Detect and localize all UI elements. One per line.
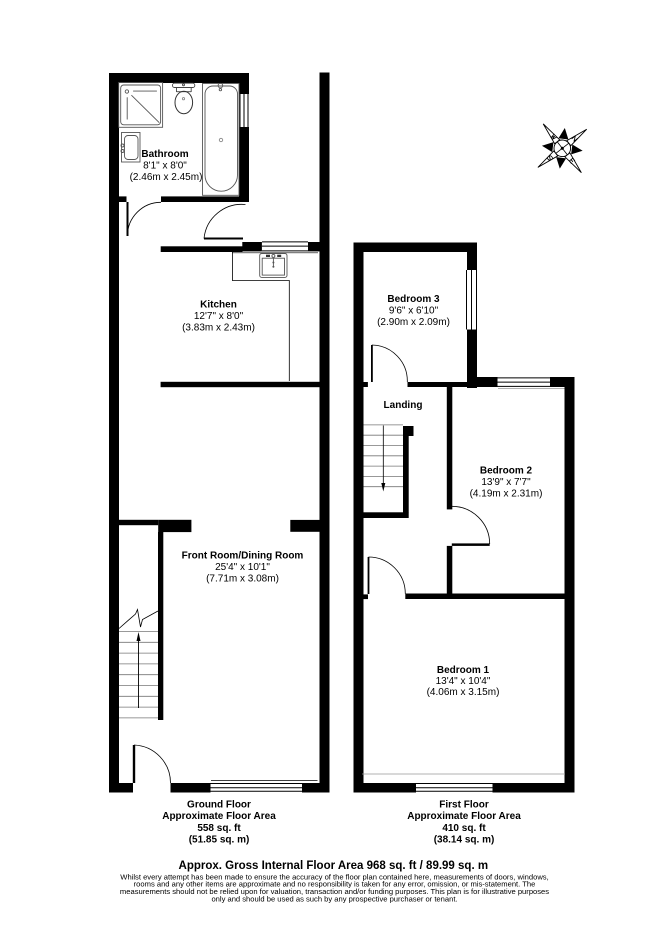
svg-text:12'7" x 8'0": 12'7" x 8'0" xyxy=(194,311,244,322)
svg-text:9'6" x 6'10": 9'6" x 6'10" xyxy=(389,306,439,317)
svg-text:Bathroom: Bathroom xyxy=(141,149,188,160)
svg-text:First Floor: First Floor xyxy=(439,800,489,811)
svg-text:Bedroom 2: Bedroom 2 xyxy=(480,466,533,477)
svg-text:Landing: Landing xyxy=(384,400,423,411)
svg-text:only and should be used as suc: only and should be used as such by any p… xyxy=(211,895,457,904)
svg-text:25'4" x 10'1": 25'4" x 10'1" xyxy=(215,562,270,573)
svg-text:(51.85 sq. m): (51.85 sq. m) xyxy=(189,834,250,845)
svg-text:410 sq. ft: 410 sq. ft xyxy=(442,823,486,834)
svg-text:Front Room/Dining Room: Front Room/Dining Room xyxy=(182,551,304,562)
svg-text:13'9" x 7'7": 13'9" x 7'7" xyxy=(481,477,531,488)
svg-text:(4.06m x 3.15m): (4.06m x 3.15m) xyxy=(427,687,500,698)
svg-text:(4.19m x 2.31m): (4.19m x 2.31m) xyxy=(470,489,543,500)
svg-text:Approx. Gross Internal Floor A: Approx. Gross Internal Floor Area 968 sq… xyxy=(179,860,489,872)
svg-text:(38.14 sq. m): (38.14 sq. m) xyxy=(434,834,495,845)
svg-text:13'4" x 10'4": 13'4" x 10'4" xyxy=(436,676,491,687)
svg-text:Approximate Floor Area: Approximate Floor Area xyxy=(407,811,521,822)
svg-text:8'1" x 8'0": 8'1" x 8'0" xyxy=(143,161,187,172)
svg-text:558 sq. ft: 558 sq. ft xyxy=(197,823,241,834)
svg-text:Bedroom 1: Bedroom 1 xyxy=(437,665,490,676)
svg-text:Approximate Floor Area: Approximate Floor Area xyxy=(162,811,276,822)
svg-text:(2.90m x 2.09m): (2.90m x 2.09m) xyxy=(377,317,450,328)
svg-text:Kitchen: Kitchen xyxy=(200,300,237,311)
svg-text:Bedroom 3: Bedroom 3 xyxy=(387,294,440,305)
svg-text:(7.71m x 3.08m): (7.71m x 3.08m) xyxy=(206,574,279,585)
svg-text:(3.83m x 2.43m): (3.83m x 2.43m) xyxy=(182,323,255,334)
svg-text:(2.46m x 2.45m): (2.46m x 2.45m) xyxy=(130,172,203,183)
svg-text:Ground Floor: Ground Floor xyxy=(187,800,251,811)
